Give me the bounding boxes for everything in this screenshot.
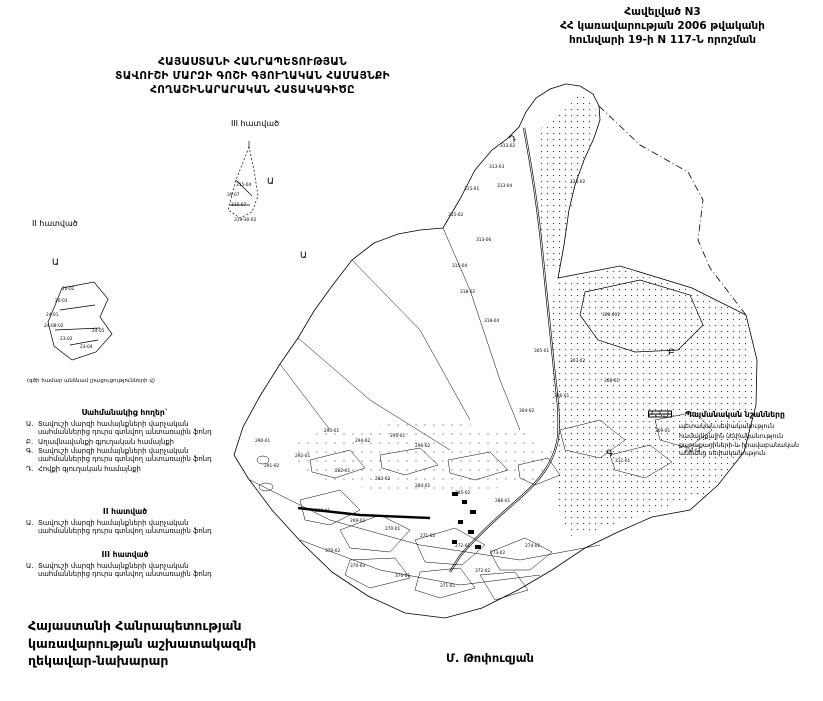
section2-marker: Ա. bbox=[26, 519, 35, 535]
parcel-label: 313-03 bbox=[489, 164, 504, 170]
map-title-line2: ՏԱՎՈՒՇԻ ՄԱՐԶԻ ԳՈՇԻ ԳՅՈՒՂԱԿԱՆ ՀԱՄԱՅՆՔԻ bbox=[80, 69, 425, 83]
parcel-label: 313-06 bbox=[476, 237, 491, 243]
neighbor-letter: Ա bbox=[300, 251, 307, 261]
inset3-parcel-label: 315-07 bbox=[231, 202, 246, 208]
section3-heading: III հատված bbox=[26, 551, 224, 559]
neighbor-marker: Գ. bbox=[26, 447, 35, 463]
parcel-label: 306-01 bbox=[554, 393, 569, 399]
parcel-label: 304-02 bbox=[519, 408, 534, 414]
section2-item: Ա. Տավուշի մարզի համայնքների վարչական սա… bbox=[26, 519, 224, 535]
parcel-label: 315-01 bbox=[464, 186, 479, 192]
section3-text: Տավուշի մարզի համայնքների վարչական սահմա… bbox=[38, 562, 224, 578]
neighbor-letter: Բ bbox=[668, 348, 675, 358]
section3-item: Ա. Տավուշի մարզի համայնքների վարչական սա… bbox=[26, 562, 224, 578]
parcel-label: 271-02 bbox=[420, 533, 435, 539]
legend-title: Պայմանական նշանները bbox=[648, 410, 822, 419]
parcel-label: 290-01 bbox=[255, 438, 270, 444]
inset2-parcel-label: 23-04 bbox=[80, 344, 93, 350]
parcel-label: 372-02 bbox=[475, 568, 490, 574]
office-line1: Հայաստանի Հանրապետության bbox=[28, 617, 256, 635]
parcel-label: 272-01 bbox=[455, 543, 470, 549]
parcel-label: 286-01 bbox=[495, 498, 510, 504]
citizens-property-symbol bbox=[648, 442, 674, 443]
parcel-label: 273-02 bbox=[490, 550, 505, 556]
parcel-label: 283-02 bbox=[375, 476, 390, 482]
state-property-symbol bbox=[648, 423, 674, 424]
inset2-parcel-label: 23-02 bbox=[60, 336, 73, 342]
inset3-letter: Ա bbox=[267, 177, 274, 187]
legend-item-state: պետական սեփականություն bbox=[648, 423, 822, 431]
interior-lines bbox=[250, 228, 600, 585]
neighbor-item: Բ. Աղավնավանքի գյուղական համայնքի bbox=[26, 438, 224, 446]
decree-header-line2: ՀՀ կառավարության 2006 թվականի bbox=[505, 19, 820, 33]
neighbor-text: Հովքի գյուղական համայնքի bbox=[38, 465, 141, 473]
parcel-label: 284-01 bbox=[415, 483, 430, 489]
inset2-parcel-label: 20-03 bbox=[55, 298, 68, 304]
signatory-office: Հայաստանի Հանրապետության կառավարության ա… bbox=[28, 617, 256, 670]
parcel-label: 370-02 bbox=[325, 548, 340, 554]
parcel-label: 268-01 bbox=[315, 508, 330, 514]
neighbor-letter: Գ bbox=[606, 449, 613, 459]
neighbor-letter: Դ bbox=[509, 135, 516, 145]
parcel-label: 315-04 bbox=[452, 263, 467, 269]
neighbor-item: Ա. Տավուշի մարզի համայնքների վարչական սա… bbox=[26, 420, 224, 436]
inset2-parcel-label: 20-02 bbox=[62, 286, 75, 292]
parcel-label: 308-01 bbox=[604, 378, 619, 384]
legend-item-citizens: քաղաքացիների և իրավաբանական անձանց սեփակ… bbox=[648, 442, 822, 457]
parcel-label: 285-02 bbox=[455, 490, 470, 496]
signatory-name: Մ. Թոփուզյան bbox=[446, 651, 534, 665]
legend-item-community: համայնքային սեփականություն bbox=[648, 433, 822, 441]
section3-block: III հատված Ա. Տավուշի մարզի համայնքների … bbox=[26, 551, 224, 580]
parcel-label: 270-01 bbox=[385, 526, 400, 532]
neighbor-text: Տավուշի մարզի համայնքների վարչական սահմա… bbox=[38, 420, 224, 436]
parcel-label: 269-02 bbox=[350, 518, 365, 524]
neighbor-text: Տավուշի մարզի համայնքների վարչական սահմա… bbox=[38, 447, 224, 463]
parcel-label: 305-01 bbox=[534, 348, 549, 354]
section2-block: II հատված Ա. Տավուշի մարզի համայնքների վ… bbox=[26, 508, 224, 537]
parcel-label: 315-02 bbox=[448, 212, 463, 218]
parcel-label: 318-02 bbox=[460, 289, 475, 295]
inset3-parcel-label: 319-30-02 bbox=[234, 217, 257, 223]
neighbors-heading: Սահմանակից հողեր` bbox=[26, 409, 224, 417]
parcel-label: 295-01 bbox=[390, 433, 405, 439]
neighbor-item: Դ. Հովքի գյուղական համայնքի bbox=[26, 465, 224, 473]
neighbor-text: Աղավնավանքի գյուղական համայնքի bbox=[38, 438, 174, 446]
parcel-label: 293-01 bbox=[324, 428, 339, 434]
parcel-label: 296-02 bbox=[415, 443, 430, 449]
parcel-label: 313-04 bbox=[497, 183, 512, 189]
stipple-north-arm bbox=[537, 92, 597, 272]
legend-citizens-text: քաղաքացիների և իրավաբանական անձանց սեփակ… bbox=[679, 442, 822, 457]
scanned-map-page: { "colors": {"ink": "#000000", "paper": … bbox=[0, 0, 823, 701]
legend-community-text: համայնքային սեփականություն bbox=[679, 433, 783, 441]
parcel-label: 291-02 bbox=[264, 463, 279, 469]
inset2-parcel-label: 24-05 bbox=[92, 328, 105, 334]
map-svg: 313-02313-03315-01313-04315-02313-06225-… bbox=[0, 0, 823, 701]
parcel-label: 282-01 bbox=[335, 468, 350, 474]
legend-state-text: պետական սեփականություն bbox=[679, 423, 774, 431]
parcel-label: 311-01 bbox=[615, 458, 630, 464]
footnote: (գծի համար անձնամ լրացուցությունների վ) bbox=[27, 378, 155, 384]
neighbor-marker: Ա. bbox=[26, 420, 35, 436]
neighbor-item: Գ. Տավուշի մարզի համայնքների վարչական սա… bbox=[26, 447, 224, 463]
inset3-parcel-label: 315-04 bbox=[236, 182, 251, 188]
inset2-parcel-label: 24-01 bbox=[46, 312, 59, 318]
decree-header: Հավելված N3 ՀՀ կառավարության 2006 թվական… bbox=[505, 5, 820, 47]
parcel-label: 308-001 bbox=[602, 312, 620, 318]
neighbor-marker: Բ. bbox=[26, 438, 35, 446]
map-title-line1: ՀԱՅԱՍՏԱՆԻ ՀԱՆՐԱՊԵՏՈՒԹՅԱՆ bbox=[80, 55, 425, 69]
section2-heading: II հատված bbox=[26, 508, 224, 516]
parcel-label: 318-04 bbox=[484, 318, 499, 324]
inset3-parcel-label: 39-07 bbox=[227, 192, 240, 198]
inset2-letter: Ա bbox=[52, 258, 59, 268]
decree-header-line3: հունվարի 19-ի N 117-Ն որոշման bbox=[505, 33, 820, 47]
parcel-label: 371-01 bbox=[440, 583, 455, 589]
neighbors-block: Սահմանակից հողեր` Ա. Տավուշի մարզի համայ… bbox=[26, 409, 224, 474]
parcel-label: 370-03 bbox=[350, 563, 365, 569]
map-title-line3: ՀՈՂԱՇԻՆԱՐԱՐԱԿԱՆ ՀԱՏԱԿԱԳԻԾԸ bbox=[80, 83, 425, 97]
map-title: ՀԱՅԱՍՏԱՆԻ ՀԱՆՐԱՊԵՏՈՒԹՅԱՆ ՏԱՎՈՒՇԻ ՄԱՐԶԻ Գ… bbox=[80, 55, 425, 97]
office-line2: կառավարության աշխատակազմի bbox=[28, 635, 256, 653]
section3-marker: Ա. bbox=[26, 562, 35, 578]
inset2-parcel-label: 24-08-02 bbox=[44, 323, 64, 329]
legend: Պայմանական նշանները պետական սեփականությո… bbox=[648, 410, 822, 459]
neighbor-marker: Դ. bbox=[26, 465, 35, 473]
section2-text: Տավուշի մարզի համայնքների վարչական սահմա… bbox=[38, 519, 224, 535]
community-property-symbol bbox=[648, 433, 674, 434]
parcel-label: 274-01 bbox=[525, 543, 540, 549]
parcel-label: 225-02 bbox=[570, 179, 585, 185]
decree-header-line1: Հավելված N3 bbox=[505, 5, 820, 19]
inset2-label: II հատված bbox=[32, 219, 78, 228]
parcel-label: 294-02 bbox=[355, 438, 370, 444]
parcel-label: 370-01 bbox=[395, 573, 410, 579]
parcel-label: 307-02 bbox=[570, 358, 585, 364]
inset3-label: III հատված bbox=[205, 119, 305, 128]
office-line3: ղեկավար-նախարար bbox=[28, 652, 256, 670]
parcel-label: 292-01 bbox=[295, 453, 310, 459]
